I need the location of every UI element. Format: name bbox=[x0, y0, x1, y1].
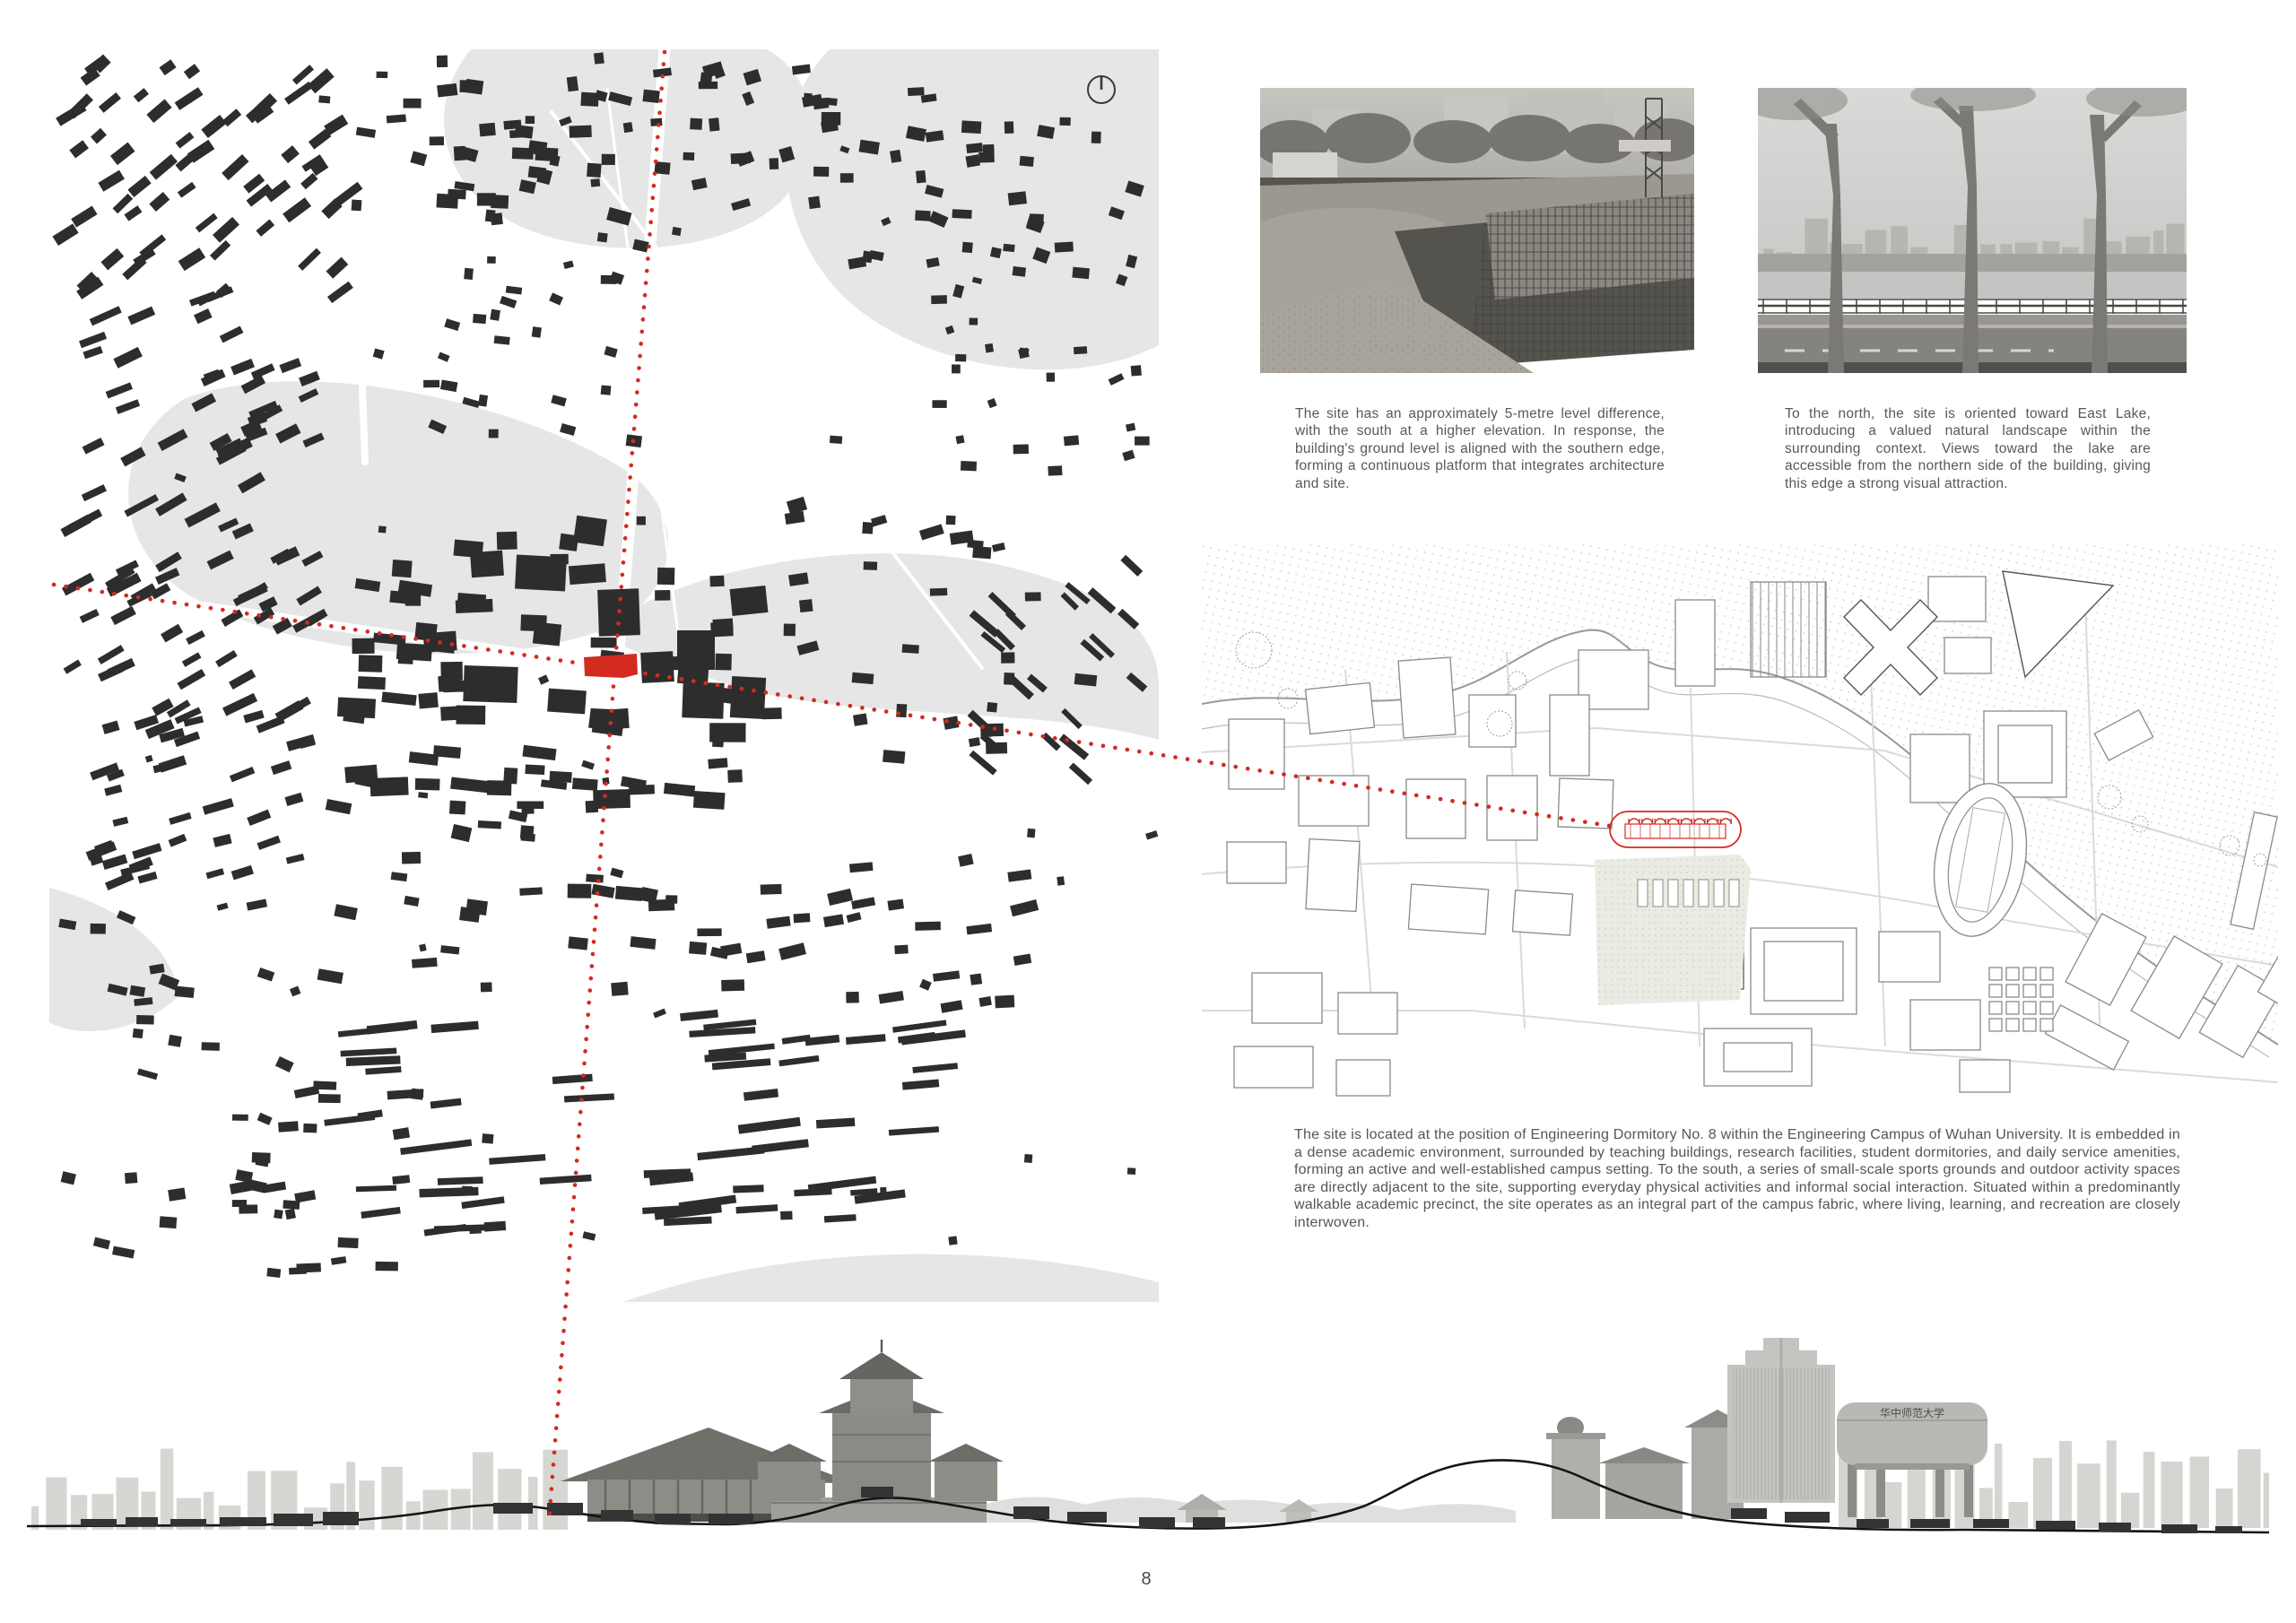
photo2-caption: To the north, the site is oriented towar… bbox=[1785, 405, 2151, 492]
site-description-paragraph: The site is located at the position of E… bbox=[1294, 1126, 2180, 1231]
sports-ground-green bbox=[1595, 855, 1751, 1005]
photo1-caption: The site has an approximately 5-metre le… bbox=[1295, 405, 1665, 492]
site-marker-city-map bbox=[584, 654, 638, 678]
photo1-scaffolding bbox=[1468, 194, 1694, 362]
gate-calligraphy-text: 华中师范大学 bbox=[1880, 1406, 1944, 1419]
campus-site-plan bbox=[1202, 544, 2278, 1113]
highrise-tower bbox=[1727, 1338, 1835, 1503]
campus-section-panorama: 华中师范大学 bbox=[27, 1327, 2269, 1569]
photo-east-lake bbox=[1758, 88, 2187, 373]
page-number: 8 bbox=[1133, 1569, 1160, 1590]
city-figure-ground-map bbox=[49, 49, 1159, 1302]
photo-construction-site bbox=[1260, 88, 1694, 373]
